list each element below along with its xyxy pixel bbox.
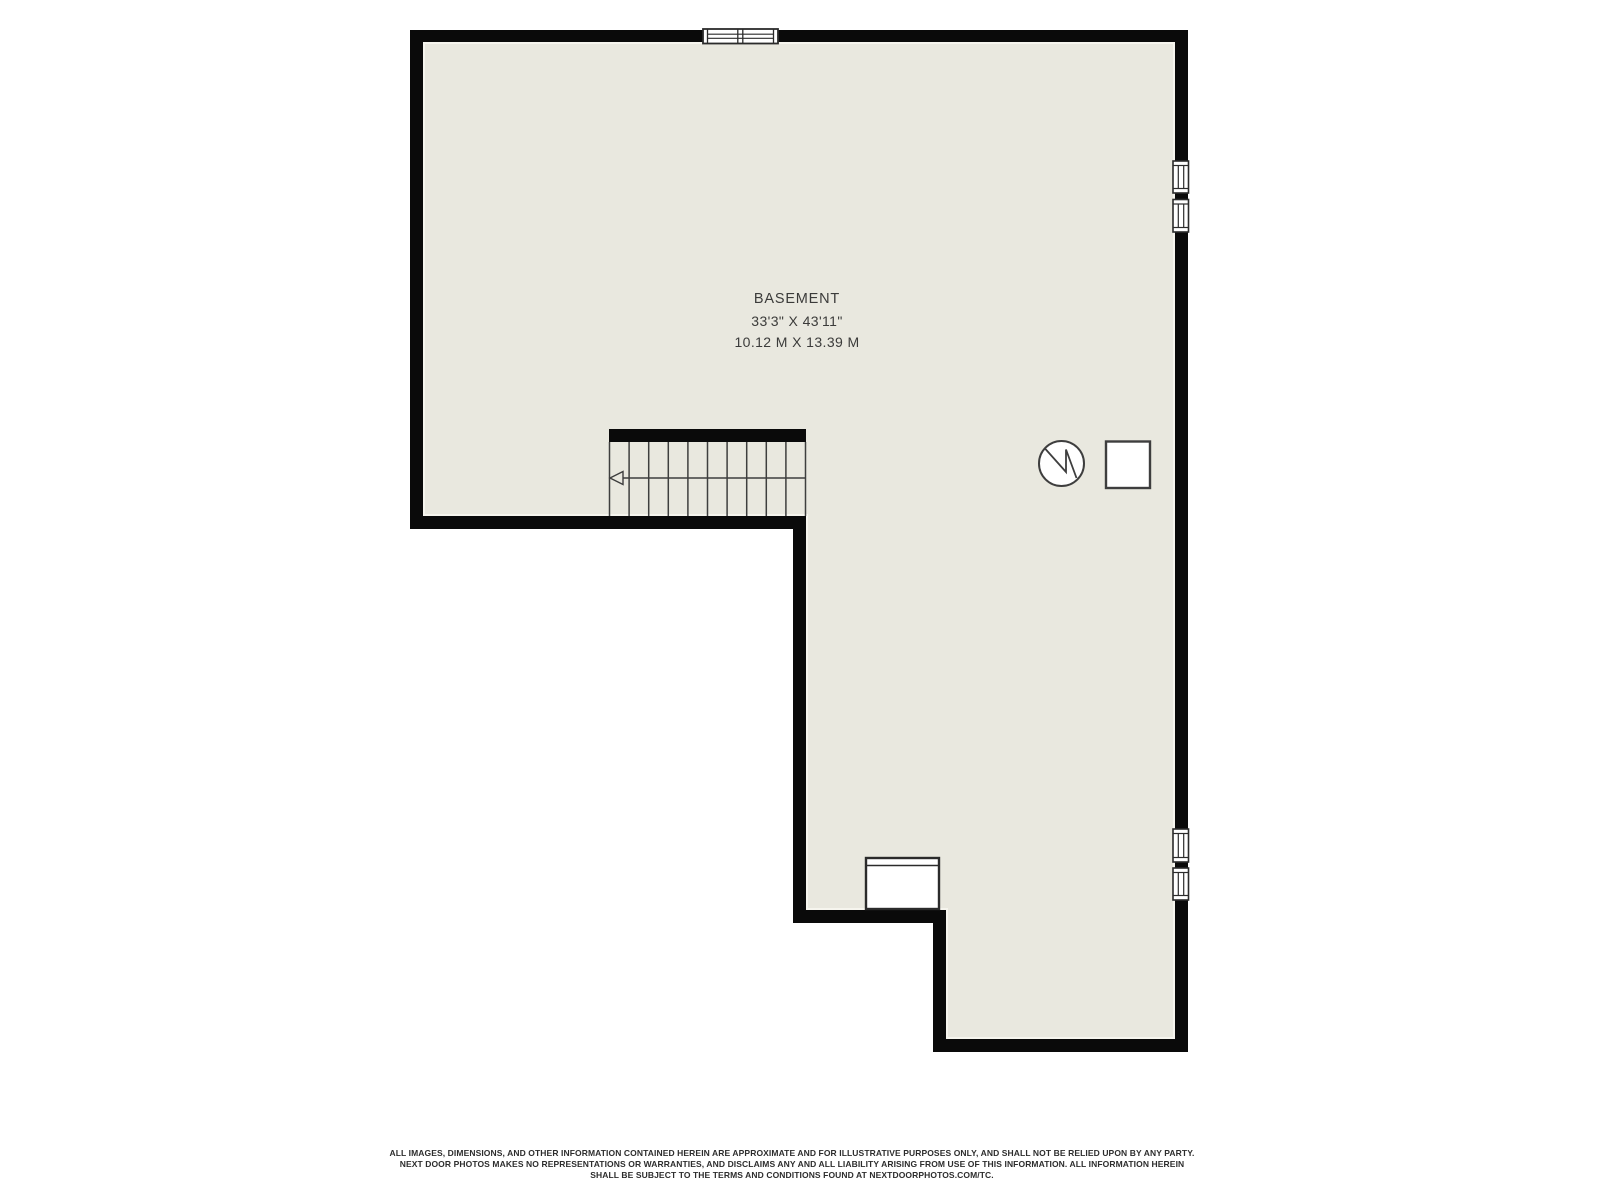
window-right-lower-1-icon	[1173, 829, 1189, 862]
water-heater-icon	[1039, 441, 1084, 486]
window-well-fixture-icon	[866, 858, 939, 909]
stair-head-wall	[609, 429, 806, 442]
disclaimer: ALL IMAGES, DIMENSIONS, AND OTHER INFORM…	[292, 1148, 1292, 1181]
window-right-upper-2-icon	[1173, 200, 1189, 233]
window-top-icon	[703, 29, 778, 44]
room-dimensions-imperial: 33'3" X 43'11"	[597, 311, 997, 333]
floorplan-drawing	[0, 0, 1600, 1200]
floorplan-page: BASEMENT 33'3" X 43'11" 10.12 M X 13.39 …	[0, 0, 1600, 1200]
furnace-icon	[1106, 442, 1150, 489]
disclaimer-line-2: NEXT DOOR PHOTOS MAKES NO REPRESENTATION…	[292, 1159, 1292, 1170]
room-dimensions-metric: 10.12 M X 13.39 M	[597, 332, 997, 354]
disclaimer-line-1: ALL IMAGES, DIMENSIONS, AND OTHER INFORM…	[292, 1148, 1292, 1159]
room-label: BASEMENT 33'3" X 43'11" 10.12 M X 13.39 …	[597, 289, 997, 354]
window-right-upper-1-icon	[1173, 161, 1189, 193]
room-name: BASEMENT	[597, 289, 997, 311]
window-right-lower-2-icon	[1173, 868, 1189, 900]
disclaimer-line-3: SHALL BE SUBJECT TO THE TERMS AND CONDIT…	[292, 1170, 1292, 1181]
